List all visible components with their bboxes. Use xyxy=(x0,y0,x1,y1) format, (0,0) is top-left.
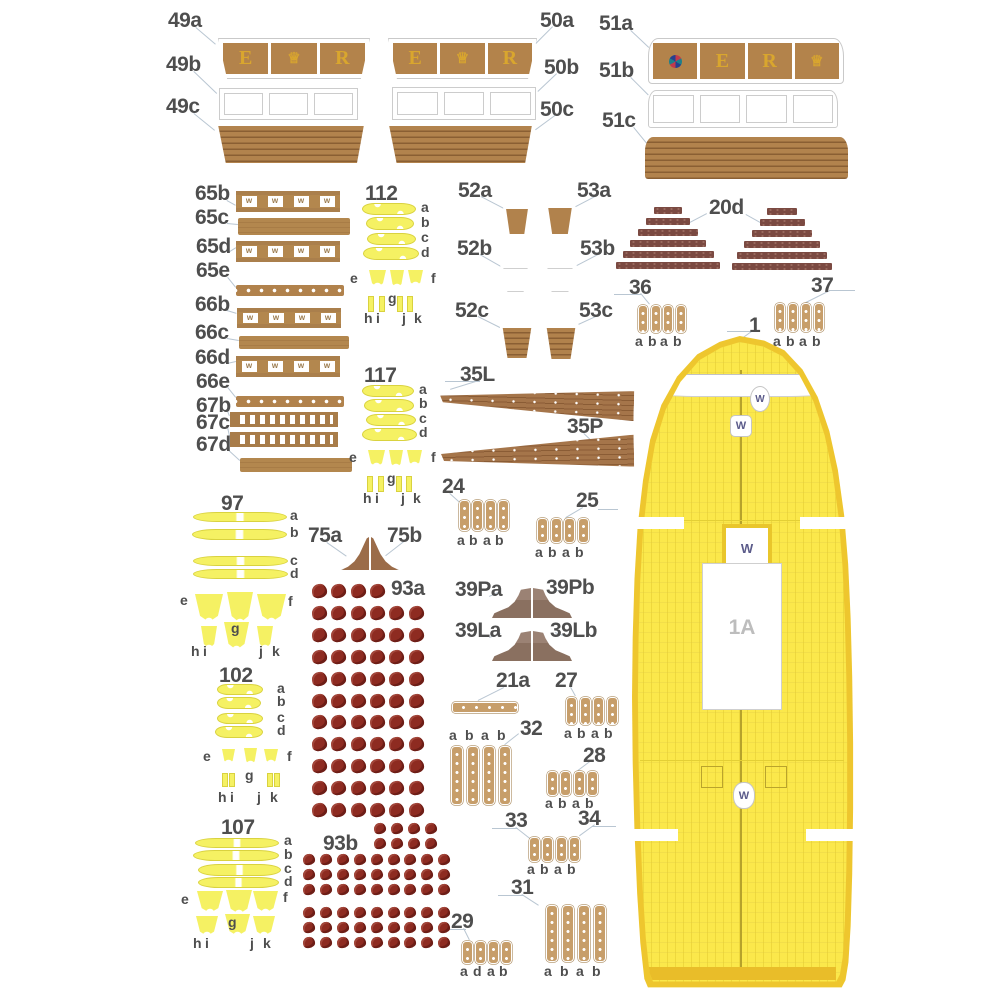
part-102g4 xyxy=(274,773,280,787)
window-cell: w xyxy=(294,246,309,256)
part-28 xyxy=(574,771,585,796)
window-cell xyxy=(746,95,787,123)
part-97e1 xyxy=(195,594,223,622)
label-50b: 50b xyxy=(544,57,579,78)
part-93b xyxy=(319,921,332,934)
part-52b-face xyxy=(501,268,530,292)
rail xyxy=(236,208,340,212)
deck-marker: W xyxy=(730,415,752,437)
part-102e1 xyxy=(222,749,235,764)
part-35P xyxy=(441,435,635,470)
part-102e2 xyxy=(244,748,257,765)
part-93a xyxy=(369,714,386,730)
part-24 xyxy=(485,500,496,531)
fitting-square xyxy=(765,766,787,788)
part-50a: E♕R xyxy=(388,38,537,79)
part-letter-g: g xyxy=(231,621,240,635)
part-50b xyxy=(392,87,536,120)
part-letter-d: d xyxy=(277,723,286,737)
part-93a xyxy=(311,605,328,621)
part-20dR xyxy=(767,208,797,215)
label-49c: 49c xyxy=(166,96,200,117)
label-28: 28 xyxy=(583,745,605,766)
part-93a xyxy=(408,693,425,709)
part-97c xyxy=(193,556,288,566)
part-51a: ER♕ xyxy=(648,38,844,84)
label-27: 27 xyxy=(555,670,577,691)
part-37 xyxy=(775,303,785,332)
part-24 xyxy=(459,500,470,531)
part-93a xyxy=(330,736,347,752)
part-93a xyxy=(408,671,425,687)
part-65d: wwww xyxy=(236,241,340,262)
part-66d: wwww xyxy=(236,356,340,377)
part-93a xyxy=(350,627,367,643)
part-93a xyxy=(408,627,425,643)
part-112e1 xyxy=(369,270,386,287)
part-37 xyxy=(814,303,824,332)
leader-line xyxy=(504,733,519,745)
part-letter-a: a xyxy=(284,833,292,847)
part-letter-j: j xyxy=(259,644,263,658)
plate-letter: E xyxy=(223,43,268,74)
part-53b-face xyxy=(545,268,575,292)
part-66b: wwww xyxy=(237,308,341,328)
label-107: 107 xyxy=(221,817,255,838)
deck-cutout-1A: 1A xyxy=(702,563,782,710)
part-32 xyxy=(451,746,463,805)
part-117e2 xyxy=(389,450,403,468)
part-93b xyxy=(404,921,417,934)
part-letter-b: b xyxy=(469,533,478,547)
part-93b xyxy=(336,921,349,934)
part-93b xyxy=(407,822,420,835)
part-24 xyxy=(472,500,483,531)
part-letter-h: h xyxy=(218,790,227,804)
label-53a: 53a xyxy=(577,180,611,201)
label-97: 97 xyxy=(221,493,243,514)
label-25: 25 xyxy=(576,490,598,511)
part-93b xyxy=(319,906,332,919)
balustrade-row: wwww xyxy=(236,360,340,373)
part-93b xyxy=(421,853,434,866)
part-52c xyxy=(496,324,538,362)
part-53a xyxy=(542,204,578,238)
part-93b xyxy=(421,868,434,881)
part-letter-j: j xyxy=(250,936,254,950)
part-93b xyxy=(373,837,386,850)
part-112b xyxy=(366,217,414,230)
part-20dL xyxy=(623,251,714,258)
label-53c: 53c xyxy=(579,300,613,321)
bow-white-band xyxy=(634,374,850,397)
window-cell: w xyxy=(268,361,283,371)
window-cell: w xyxy=(268,246,283,256)
part-93a xyxy=(311,714,328,730)
part-51c xyxy=(645,137,848,179)
part-93a xyxy=(388,736,405,752)
part-letter-b: b xyxy=(499,964,508,978)
part-93b xyxy=(370,853,383,866)
window-cell: w xyxy=(294,361,309,371)
label-35P: 35P xyxy=(567,416,603,437)
part-31 xyxy=(594,905,606,962)
part-93b xyxy=(387,921,400,934)
plate-letter: ♕ xyxy=(795,43,839,79)
part-107e1 xyxy=(197,891,223,913)
label-53b: 53b xyxy=(580,238,615,259)
part-letter-b: b xyxy=(585,796,594,810)
part-93a xyxy=(311,780,328,796)
label-67d: 67d xyxy=(196,434,231,455)
part-93a xyxy=(350,649,367,665)
part-letter-f: f xyxy=(287,749,292,763)
part-letter-b: b xyxy=(560,964,569,978)
part-107c xyxy=(198,864,281,876)
part-letter-g: g xyxy=(228,915,237,929)
part-letter-k: k xyxy=(263,936,271,950)
window-cell xyxy=(397,92,438,115)
part-117g4 xyxy=(406,476,412,492)
part-letter-a: a xyxy=(544,964,552,978)
part-letter-b: b xyxy=(540,862,549,876)
part-75 xyxy=(341,537,369,570)
label-112: 112 xyxy=(365,183,397,204)
part-93a xyxy=(369,802,386,818)
part-52a xyxy=(500,205,534,238)
part-93b xyxy=(302,868,315,881)
window-cell xyxy=(793,95,834,123)
label-65d: 65d xyxy=(196,236,231,257)
part-93a xyxy=(408,780,425,796)
part-1-deck: WWW1AW xyxy=(630,336,854,992)
part-112c xyxy=(367,233,416,245)
rail xyxy=(236,373,340,377)
part-93b xyxy=(437,906,450,919)
label-50c: 50c xyxy=(540,99,574,120)
part-97d xyxy=(193,569,288,579)
deck-marker: W xyxy=(726,528,768,568)
part-letter-k: k xyxy=(270,790,278,804)
part-93a xyxy=(369,758,386,774)
part-letter-a: a xyxy=(449,728,457,742)
part-93b xyxy=(319,883,332,896)
part-93a xyxy=(330,693,347,709)
part-25 xyxy=(578,518,589,543)
label-51a: 51a xyxy=(599,13,633,34)
label-66e: 66e xyxy=(196,371,230,392)
part-107e3 xyxy=(253,891,278,913)
part-letter-f: f xyxy=(431,271,436,285)
plate-letter: R xyxy=(488,43,532,74)
part-93b xyxy=(319,868,332,881)
part-93b xyxy=(370,921,383,934)
window-cell xyxy=(314,93,353,115)
part-20dR xyxy=(760,219,805,226)
part-93b xyxy=(421,906,434,919)
label-51c: 51c xyxy=(602,110,636,131)
part-93a xyxy=(369,605,386,621)
rail xyxy=(236,258,340,262)
part-93a xyxy=(311,627,328,643)
part-letter-b: b xyxy=(558,796,567,810)
part-93b xyxy=(353,868,366,881)
part-93a xyxy=(311,649,328,665)
window-cell: w xyxy=(295,313,310,323)
part-24 xyxy=(498,500,509,531)
part-93a xyxy=(408,605,425,621)
part-93a xyxy=(350,802,367,818)
part-93a xyxy=(350,605,367,621)
part-93b xyxy=(437,883,450,896)
label-21a: 21a xyxy=(496,670,530,691)
plate-letter: R xyxy=(748,43,792,79)
leader-line xyxy=(688,213,707,224)
part-93a xyxy=(330,649,347,665)
part-107g3 xyxy=(253,916,275,936)
label-29: 29 xyxy=(451,911,473,932)
part-letter-a: a xyxy=(545,796,553,810)
part-29 xyxy=(462,941,473,964)
part-letter-i: i xyxy=(376,311,380,325)
part-20dL xyxy=(638,229,698,236)
window-cell: w xyxy=(294,196,309,206)
window-cell: w xyxy=(242,196,257,206)
part-93a xyxy=(369,583,386,599)
window-cell: w xyxy=(320,196,335,206)
part-35L xyxy=(440,386,635,421)
label-52a: 52a xyxy=(458,180,492,201)
part-93a xyxy=(369,736,386,752)
part-letter-b: b xyxy=(567,862,576,876)
part-letter-f: f xyxy=(431,450,436,464)
part-letter-a: a xyxy=(773,334,781,348)
label-50a: 50a xyxy=(540,10,574,31)
part-93a xyxy=(408,736,425,752)
label-102: 102 xyxy=(219,665,253,686)
part-93a xyxy=(330,758,347,774)
part-letter-a: a xyxy=(572,796,580,810)
part-letter-g: g xyxy=(245,768,254,782)
part-32 xyxy=(467,746,479,805)
part-93b xyxy=(302,936,315,949)
label-32: 32 xyxy=(520,718,542,739)
part-27 xyxy=(593,697,604,725)
part-93b xyxy=(319,853,332,866)
part-107d xyxy=(198,877,279,888)
part-93a xyxy=(408,649,425,665)
label-51b: 51b xyxy=(599,60,634,81)
part-93a xyxy=(330,627,347,643)
part-93b xyxy=(387,853,400,866)
part-93b xyxy=(404,936,417,949)
part-letter-i: i xyxy=(205,936,209,950)
label-67c: 67c xyxy=(196,412,230,433)
part-53c-face xyxy=(544,328,578,359)
label-65e: 65e xyxy=(196,260,230,281)
part-letter-a: a xyxy=(591,726,599,740)
label-24: 24 xyxy=(442,476,464,497)
part-93a xyxy=(330,583,347,599)
part-letter-c: c xyxy=(421,230,429,244)
part-28 xyxy=(560,771,571,796)
part-117d xyxy=(362,428,417,441)
part-36 xyxy=(676,305,686,333)
part-letter-f: f xyxy=(288,594,293,608)
stern-band xyxy=(648,967,836,980)
part-93b xyxy=(437,853,450,866)
part-letter-b: b xyxy=(577,726,586,740)
part-93a xyxy=(388,714,405,730)
part-102g2 xyxy=(229,773,235,787)
part-letter-i: i xyxy=(230,790,234,804)
part-letter-a: a xyxy=(419,382,427,396)
part-letter-k: k xyxy=(272,644,280,658)
part-93a xyxy=(408,758,425,774)
part-93b xyxy=(370,868,383,881)
window-cell: w xyxy=(269,313,284,323)
part-20dL xyxy=(654,207,682,214)
part-letter-a: a xyxy=(564,726,572,740)
part-93a xyxy=(350,693,367,709)
part-52a-face xyxy=(504,209,530,234)
part-letter-b: b xyxy=(277,694,286,708)
plate-letter: E xyxy=(393,43,437,74)
part-93b xyxy=(353,883,366,896)
label-1: 1 xyxy=(749,315,760,336)
label-75a: 75a xyxy=(308,525,342,546)
part-letter-b: b xyxy=(648,334,657,348)
part-25 xyxy=(551,518,562,543)
part-93b xyxy=(370,883,383,896)
part-93a xyxy=(388,605,405,621)
part-letter-a: a xyxy=(535,545,543,559)
part-letter-b: b xyxy=(495,533,504,547)
part-97e2 xyxy=(227,592,253,623)
deck-marker: W xyxy=(733,782,755,809)
deck-marker: W xyxy=(750,386,770,412)
part-49a: E♕R xyxy=(218,38,370,79)
rosette-emblem xyxy=(669,55,682,68)
window-cell: w xyxy=(321,313,336,323)
part-93a xyxy=(311,693,328,709)
hull-side-notch xyxy=(628,829,678,841)
part-93b xyxy=(387,936,400,949)
part-93a xyxy=(330,671,347,687)
plate-letter: R xyxy=(320,43,365,74)
part-33-34 xyxy=(529,837,540,862)
part-65c xyxy=(238,218,350,235)
part-31 xyxy=(546,905,558,962)
part-102c xyxy=(217,713,263,724)
part-letter-h: h xyxy=(363,491,372,505)
label-39Pa: 39Pa xyxy=(455,579,502,600)
label-65c: 65c xyxy=(195,207,229,228)
part-93b xyxy=(302,921,315,934)
window-cell xyxy=(490,92,531,115)
label-34: 34 xyxy=(578,808,600,829)
label-93b: 93b xyxy=(323,833,358,854)
part-letter-i: i xyxy=(203,644,207,658)
part-letter-a: a xyxy=(483,533,491,547)
part-letter-a: a xyxy=(576,964,584,978)
part-93b xyxy=(336,883,349,896)
part-93a xyxy=(311,671,328,687)
part-letter-b: b xyxy=(673,334,682,348)
part-93b xyxy=(336,853,349,866)
part-letter-b: b xyxy=(575,545,584,559)
part-102b xyxy=(217,697,261,709)
label-39La: 39La xyxy=(455,620,501,641)
part-117e3 xyxy=(407,450,422,466)
balustrade-row: wwww xyxy=(237,312,341,324)
label-39Lb: 39Lb xyxy=(550,620,597,641)
part-93b xyxy=(353,921,366,934)
part-letter-e: e xyxy=(203,749,211,763)
part-93a xyxy=(311,583,328,599)
part-letter-e: e xyxy=(350,271,358,285)
part-117e1 xyxy=(368,450,385,467)
part-93a xyxy=(350,714,367,730)
part-20dR xyxy=(744,241,820,248)
part-20dL xyxy=(630,240,706,247)
part-36 xyxy=(638,305,648,333)
part-93b xyxy=(319,936,332,949)
part-93a xyxy=(369,627,386,643)
part-93b xyxy=(353,936,366,949)
label-39Pb: 39Pb xyxy=(546,577,594,598)
part-93a xyxy=(330,802,347,818)
part-93a xyxy=(311,802,328,818)
label-75b: 75b xyxy=(387,525,422,546)
part-letter-k: k xyxy=(413,491,421,505)
part-letter-i: i xyxy=(375,491,379,505)
part-21a xyxy=(452,702,518,713)
part-letter-e: e xyxy=(181,892,189,906)
part-93a xyxy=(388,780,405,796)
part-letter-f: f xyxy=(283,890,288,904)
balustrade-row: wwww xyxy=(236,195,340,208)
part-93a xyxy=(408,802,425,818)
part-107b xyxy=(193,850,279,861)
part-letter-d: d xyxy=(284,874,293,888)
part-33-34 xyxy=(542,837,553,862)
window-cell xyxy=(653,95,694,123)
part-letter-a: a xyxy=(799,334,807,348)
part-93b xyxy=(424,837,437,850)
part-93b xyxy=(437,921,450,934)
hull-side-notch xyxy=(800,517,858,529)
part-53c xyxy=(540,324,582,363)
part-53b xyxy=(541,264,579,296)
plate-letter: E xyxy=(700,43,744,79)
part-letter-a: a xyxy=(481,728,489,742)
part-37 xyxy=(801,303,811,332)
part-93a xyxy=(311,758,328,774)
part-107g1 xyxy=(196,916,218,936)
part-93a xyxy=(388,693,405,709)
part-93b xyxy=(373,822,386,835)
part-25 xyxy=(564,518,575,543)
window-cell xyxy=(444,92,485,115)
part-29 xyxy=(501,941,512,964)
window-cell xyxy=(269,93,308,115)
label-33: 33 xyxy=(505,810,527,831)
part-93b xyxy=(424,822,437,835)
part-20dR xyxy=(732,263,832,270)
part-20dL xyxy=(616,262,720,269)
part-102e3 xyxy=(264,749,278,764)
